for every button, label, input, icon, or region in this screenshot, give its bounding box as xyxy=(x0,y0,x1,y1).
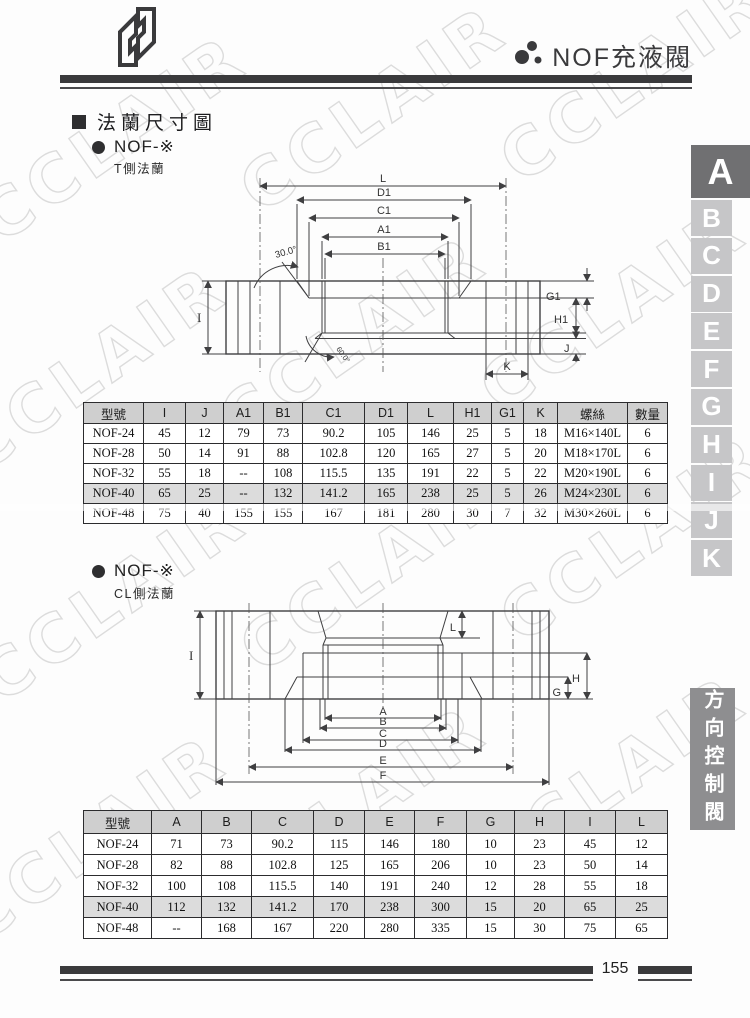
table-cell: 181 xyxy=(365,504,408,524)
table-cell: 55 xyxy=(144,464,186,484)
table-row: NOF-24717390.211514618010234512 xyxy=(84,834,668,855)
column-header: 數量 xyxy=(628,403,668,424)
table-cell: 20 xyxy=(524,444,558,464)
table-cell: M18×170L xyxy=(558,444,628,464)
table-cell: 40 xyxy=(186,504,224,524)
table-cell: NOF-28 xyxy=(84,444,144,464)
table-cell: 5 xyxy=(492,484,524,504)
table-cell: 100 xyxy=(152,876,202,897)
table-cell: 12 xyxy=(467,876,515,897)
column-header: L xyxy=(616,811,668,834)
cl-flange-dimension-table: 型號ABCDEFGHILNOF-24717390.211514618010234… xyxy=(83,810,668,939)
table-cell: 90.2 xyxy=(252,834,314,855)
column-header: D1 xyxy=(365,403,408,424)
table-row: NOF-48754015515516718128030732M30×260L6 xyxy=(84,504,668,524)
table-cell: 45 xyxy=(565,834,616,855)
table-cell: 15 xyxy=(467,918,515,939)
sidebar-tab-F: F xyxy=(691,351,732,387)
column-header: D xyxy=(314,811,365,834)
column-header: H1 xyxy=(454,403,492,424)
table-cell: 105 xyxy=(365,424,408,444)
table-cell: 28 xyxy=(515,876,565,897)
dim-label-J: J xyxy=(564,343,570,355)
table-cell: 240 xyxy=(415,876,467,897)
column-header: E xyxy=(365,811,415,834)
table-cell: 73 xyxy=(264,424,303,444)
dim-label-I: I xyxy=(197,310,201,325)
table-cell: 10 xyxy=(467,834,515,855)
page-title: NOF充液閥 xyxy=(552,38,692,74)
sidebar-tab-B: B xyxy=(691,200,732,236)
table-cell: 20 xyxy=(515,897,565,918)
table-cell: 165 xyxy=(365,484,408,504)
sidebar-tab-K: K xyxy=(691,540,732,576)
table-cell: 23 xyxy=(515,834,565,855)
table-cell: 146 xyxy=(408,424,454,444)
table-cell: 65 xyxy=(565,897,616,918)
table-cell: 238 xyxy=(408,484,454,504)
column-header: K xyxy=(524,403,558,424)
footer-divider-thin-right xyxy=(638,979,692,981)
table-cell: 30 xyxy=(454,504,492,524)
table-cell: 120 xyxy=(365,444,408,464)
table-cell: 88 xyxy=(202,855,252,876)
table-cell: NOF-24 xyxy=(84,424,144,444)
table-cell: 50 xyxy=(565,855,616,876)
sidebar-tab-D: D xyxy=(691,276,732,312)
table-cell: 55 xyxy=(565,876,616,897)
column-header: F xyxy=(415,811,467,834)
table-cell: 32 xyxy=(524,504,558,524)
table-cell: 65 xyxy=(144,484,186,504)
table-row: NOF-325518--108115.513519122522M20×190L6 xyxy=(84,464,668,484)
table-cell: 5 xyxy=(492,444,524,464)
table-cell: 141.2 xyxy=(252,897,314,918)
table-cell: 15 xyxy=(467,897,515,918)
table-cell: 108 xyxy=(264,464,303,484)
footer-divider-thick-right xyxy=(638,966,692,974)
table-row: NOF-288288102.812516520610235014 xyxy=(84,855,668,876)
table-cell: 300 xyxy=(415,897,467,918)
table-cell: 22 xyxy=(524,464,558,484)
catalog-page: CCLAIRCCLAIRCCLAIRCCLAIRCCLAIRCCLAIRCCLA… xyxy=(0,0,750,1018)
table-cell: NOF-24 xyxy=(84,834,152,855)
page-number: 155 xyxy=(594,960,636,978)
dim-label-F: F xyxy=(380,770,387,782)
table-cell: 155 xyxy=(264,504,303,524)
table-cell: 191 xyxy=(365,876,415,897)
dim-label-B1: B1 xyxy=(377,241,390,253)
dim-label-B: B xyxy=(379,716,386,728)
dim-label-L: L xyxy=(380,173,386,185)
t-flange-dimension-table: 型號IJA1B1C1D1LH1G1K螺絲數量NOF-244512797390.2… xyxy=(83,402,668,524)
table-cell: -- xyxy=(152,918,202,939)
sidebar-tab-E: E xyxy=(691,313,732,349)
title-dots-icon xyxy=(513,41,543,72)
column-header: A1 xyxy=(224,403,264,424)
header-divider-thin xyxy=(60,87,692,89)
table-cell: 91 xyxy=(224,444,264,464)
table-cell: 45 xyxy=(144,424,186,444)
column-header: 型號 xyxy=(84,403,144,424)
table-cell: 22 xyxy=(454,464,492,484)
table-cell: 6 xyxy=(628,504,668,524)
sidebar-tab-I: I xyxy=(691,465,732,501)
table-cell: 112 xyxy=(152,897,202,918)
column-header: 螺絲 xyxy=(558,403,628,424)
table-cell: 280 xyxy=(408,504,454,524)
angle-label-30: 30.0° xyxy=(274,244,299,261)
table-cell: 75 xyxy=(565,918,616,939)
table-cell: 73 xyxy=(202,834,252,855)
table-cell: 6 xyxy=(628,484,668,504)
table-cell: 27 xyxy=(454,444,492,464)
dim-label-L: L xyxy=(450,622,456,634)
table-row: NOF-32100108115.514019124012285518 xyxy=(84,876,668,897)
column-header: L xyxy=(408,403,454,424)
table-cell: 30 xyxy=(515,918,565,939)
table-cell: 165 xyxy=(408,444,454,464)
t-flange-drawing: L D1 C1 A1 B1 30.0° 60.0° I G1 H1 J K xyxy=(150,166,620,400)
table-cell: 115.5 xyxy=(303,464,365,484)
column-header: J xyxy=(186,403,224,424)
table-cell: 206 xyxy=(415,855,467,876)
table-row: NOF-40112132141.217023830015206525 xyxy=(84,897,668,918)
table-cell: 170 xyxy=(314,897,365,918)
table-cell: 335 xyxy=(415,918,467,939)
table-row: NOF-48--16816722028033515307565 xyxy=(84,918,668,939)
table-cell: NOF-32 xyxy=(84,464,144,484)
footer-divider-thin xyxy=(60,979,593,981)
group-dot-bullet xyxy=(92,565,105,578)
dim-label-I: I xyxy=(189,648,193,663)
column-header: H xyxy=(515,811,565,834)
table-cell: 25 xyxy=(454,484,492,504)
table-cell: 26 xyxy=(524,484,558,504)
table-cell: 102.8 xyxy=(252,855,314,876)
table-cell: 191 xyxy=(408,464,454,484)
table-cell: M24×230L xyxy=(558,484,628,504)
table-cell: -- xyxy=(224,484,264,504)
header-divider-thick xyxy=(60,75,692,83)
table-cell: 165 xyxy=(365,855,415,876)
column-header: B xyxy=(202,811,252,834)
table-cell: 90.2 xyxy=(303,424,365,444)
table-cell: 146 xyxy=(365,834,415,855)
table-cell: 132 xyxy=(264,484,303,504)
table-cell: 141.2 xyxy=(303,484,365,504)
table-cell: 102.8 xyxy=(303,444,365,464)
table-cell: 14 xyxy=(186,444,224,464)
table-cell: 18 xyxy=(616,876,668,897)
table-cell: 5 xyxy=(492,424,524,444)
table-cell: 6 xyxy=(628,464,668,484)
table-cell: 115 xyxy=(314,834,365,855)
group-dot-bullet xyxy=(92,141,105,154)
table-cell: 108 xyxy=(202,876,252,897)
sidebar-tabs: BCDEFGHIJK xyxy=(691,200,732,576)
dim-label-D: D xyxy=(379,738,387,750)
section-title: 法蘭尺寸圖 xyxy=(97,108,217,135)
column-header: B1 xyxy=(264,403,303,424)
table-cell: 18 xyxy=(186,464,224,484)
table-cell: NOF-32 xyxy=(84,876,152,897)
table-cell: 5 xyxy=(492,464,524,484)
table-cell: 18 xyxy=(524,424,558,444)
dim-label-K: K xyxy=(503,361,511,373)
table-cell: 14 xyxy=(616,855,668,876)
table-cell: 238 xyxy=(365,897,415,918)
dim-label-H1: H1 xyxy=(554,314,568,326)
cl-flange-drawing: L I H G A B C D E F xyxy=(150,598,620,798)
table-cell: 25 xyxy=(186,484,224,504)
table-cell: 82 xyxy=(152,855,202,876)
table-cell: 180 xyxy=(415,834,467,855)
table-cell: 132 xyxy=(202,897,252,918)
dim-label-A1: A1 xyxy=(377,224,390,236)
table-cell: 155 xyxy=(224,504,264,524)
sidebar-tab-G: G xyxy=(691,389,732,425)
column-header: I xyxy=(565,811,616,834)
table-cell: 220 xyxy=(314,918,365,939)
table-cell: 50 xyxy=(144,444,186,464)
column-header: G1 xyxy=(492,403,524,424)
table-row: NOF-406525--132141.216523825526M24×230L6 xyxy=(84,484,668,504)
category-label: 方向控制閥 xyxy=(690,688,735,830)
table-cell: 168 xyxy=(202,918,252,939)
section-square-bullet xyxy=(72,115,86,129)
table-row: NOF-2850149188102.812016527520M18×170L6 xyxy=(84,444,668,464)
table-row: NOF-244512797390.210514625518M16×140L6 xyxy=(84,424,668,444)
table-cell: M16×140L xyxy=(558,424,628,444)
table-cell: 6 xyxy=(628,424,668,444)
table-cell: 25 xyxy=(454,424,492,444)
dim-label-G: G xyxy=(552,687,561,699)
column-header: A xyxy=(152,811,202,834)
table-cell: 75 xyxy=(144,504,186,524)
table-cell: 23 xyxy=(515,855,565,876)
table-cell: -- xyxy=(224,464,264,484)
column-header: G xyxy=(467,811,515,834)
table-cell: 12 xyxy=(616,834,668,855)
group2-label: NOF-※ xyxy=(114,561,175,581)
column-header: C1 xyxy=(303,403,365,424)
table-cell: NOF-48 xyxy=(84,918,152,939)
table-cell: NOF-48 xyxy=(84,504,144,524)
sidebar-tab-A-active: A xyxy=(691,145,750,198)
table-cell: 125 xyxy=(314,855,365,876)
table-cell: 140 xyxy=(314,876,365,897)
table-cell: 6 xyxy=(628,444,668,464)
brand-logo-icon xyxy=(110,6,164,73)
dim-label-G1: G1 xyxy=(546,291,561,303)
table-cell: 167 xyxy=(252,918,314,939)
table-cell: 115.5 xyxy=(252,876,314,897)
dim-label-H: H xyxy=(572,673,580,685)
table-cell: 7 xyxy=(492,504,524,524)
table-cell: 10 xyxy=(467,855,515,876)
table-cell: 135 xyxy=(365,464,408,484)
table-cell: NOF-40 xyxy=(84,897,152,918)
sidebar-tab-J: J xyxy=(691,502,732,538)
table-cell: 65 xyxy=(616,918,668,939)
table-cell: NOF-28 xyxy=(84,855,152,876)
column-header: 型號 xyxy=(84,811,152,834)
table-cell: M20×190L xyxy=(558,464,628,484)
angle-label-60: 60.0° xyxy=(334,345,351,365)
dim-label-C1: C1 xyxy=(377,205,391,217)
table-cell: 88 xyxy=(264,444,303,464)
sidebar-tab-H: H xyxy=(691,427,732,463)
table-cell: 71 xyxy=(152,834,202,855)
group1-label: NOF-※ xyxy=(114,137,175,157)
dim-label-D1: D1 xyxy=(377,187,391,199)
table-cell: M30×260L xyxy=(558,504,628,524)
dim-label-E: E xyxy=(379,755,386,767)
table-cell: 79 xyxy=(224,424,264,444)
table-cell: 25 xyxy=(616,897,668,918)
sidebar-tab-C: C xyxy=(691,238,732,274)
table-cell: 167 xyxy=(303,504,365,524)
column-header: C xyxy=(252,811,314,834)
footer-divider-thick xyxy=(60,966,593,974)
table-cell: 12 xyxy=(186,424,224,444)
table-cell: 280 xyxy=(365,918,415,939)
column-header: I xyxy=(144,403,186,424)
table-cell: NOF-40 xyxy=(84,484,144,504)
